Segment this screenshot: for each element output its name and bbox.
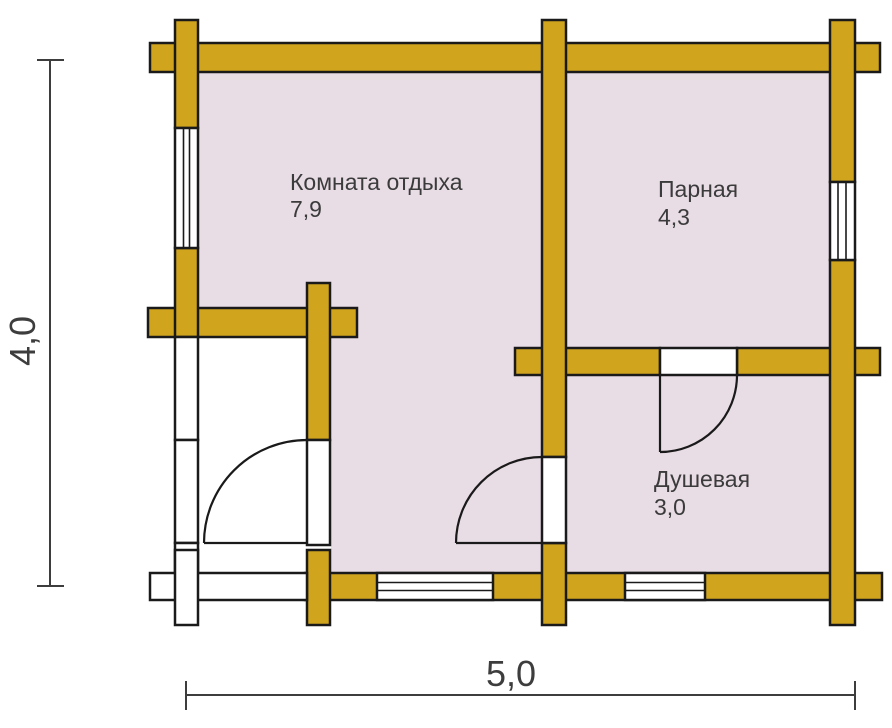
wall-left-upper (175, 20, 198, 128)
door-opening-center (542, 457, 566, 543)
porch-wall-left-1 (175, 337, 198, 440)
wall-divider-right (737, 348, 880, 375)
wall-porch-right-foot (307, 550, 330, 625)
room-shower-name: Душевая (654, 466, 750, 492)
wall-center-lower (542, 543, 566, 625)
wall-porch-right (307, 283, 330, 440)
floor-plan-svg: Комната отдыха 7,9 Парная 4,3 Душевая 3,… (0, 0, 892, 728)
dim-height-label: 4,0 (2, 316, 43, 366)
wall-right-lower (830, 260, 855, 625)
window-bottom-2 (625, 573, 705, 600)
wall-right-upper (830, 20, 855, 182)
window-left (175, 128, 198, 248)
porch-wall-left-2 (175, 440, 198, 543)
wall-left-mid (175, 248, 198, 337)
window-right (830, 182, 855, 260)
dim-width-label: 5,0 (486, 653, 536, 694)
floor-plan-page: Комната отдыха 7,9 Парная 4,3 Душевая 3,… (0, 0, 892, 728)
door-opening-porch (307, 440, 330, 545)
wall-top (150, 43, 880, 72)
porch-wall-bottom (150, 573, 307, 600)
door-opening-shower (660, 348, 737, 375)
room-shower-area: 3,0 (654, 494, 686, 520)
room-steam-area: 4,3 (658, 204, 690, 230)
room-steam-name: Парная (658, 176, 738, 202)
porch-wall-left-foot (175, 550, 198, 625)
wall-center-upper (542, 20, 566, 457)
wall-divider-left (515, 348, 660, 375)
window-bottom-1 (377, 573, 493, 600)
room-rest-name: Комната отдыха (290, 169, 463, 195)
room-rest-area: 7,9 (290, 196, 322, 222)
